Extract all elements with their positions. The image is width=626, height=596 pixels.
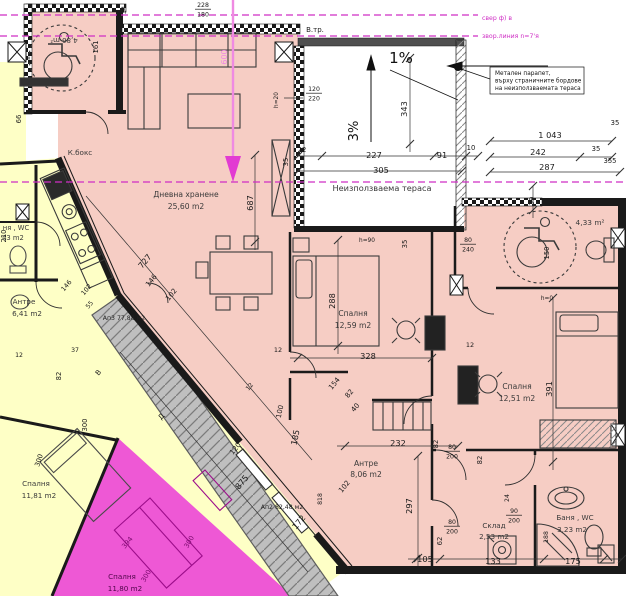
room-area-bedroom1: 12,59 m2 — [335, 321, 372, 330]
dim-label: 10 — [467, 144, 476, 152]
room-label-living: Дневна хранене — [153, 190, 219, 199]
door-size: 240 — [462, 247, 474, 254]
dim-fraction: 180 — [197, 12, 209, 19]
dim-label: 232 — [390, 438, 406, 448]
dim-label: 82 — [55, 372, 63, 381]
note-line-2: върху страничните бордове — [495, 79, 582, 85]
room-area-bath1: 4,86 m² — [50, 36, 78, 44]
note-line-3: на неизползваемата тераса — [495, 86, 581, 92]
door-size: 90 — [510, 508, 518, 515]
floor-plan-drawing: 22818012022080240802008020090200 К.боксД… — [0, 0, 626, 596]
dim-label: 328 — [360, 351, 376, 361]
apartment-label-ap3: Ап3 77,88 м2 — [103, 315, 146, 322]
railing-leader-dot — [455, 64, 462, 71]
room-area-hall-left: 6,41 m2 — [12, 309, 42, 318]
dim-label: 150 — [543, 247, 551, 260]
slope-3pct: 3% — [347, 121, 362, 142]
dim-label: 22 — [298, 146, 307, 154]
dim-label: 210 — [0, 230, 8, 243]
dim-label: 161 — [92, 41, 100, 54]
dim-label: 133 — [485, 556, 501, 566]
dim-label: h=90 — [359, 238, 375, 244]
dim-label: 82 — [476, 456, 484, 465]
door-size: 80 — [448, 519, 456, 526]
dim-label: 343 — [399, 101, 409, 117]
dim-label: 35 — [401, 240, 409, 249]
dim-label: 188 — [543, 531, 550, 543]
dim-label: 242 — [530, 147, 546, 157]
apartment-label-ap2: Ап2 82,48 м2 — [261, 504, 304, 511]
dim-label: 12 — [15, 352, 23, 359]
room-label-storage: Склад — [482, 521, 505, 530]
dim-label: 288 — [327, 293, 337, 309]
dim-label: 227 — [366, 150, 382, 160]
room-label-hall: Антре — [354, 459, 378, 468]
door-size: 200 — [446, 529, 458, 536]
room-area-bath2: 4,33 m² — [576, 218, 605, 227]
dim-label: 105 — [417, 554, 433, 564]
room-label-terrace: Неизползваема тераса — [332, 183, 431, 193]
dim-fraction: 228 — [197, 2, 209, 9]
dim-600: 600 — [220, 49, 229, 64]
dim-label: 24 — [504, 494, 511, 502]
door-size: 80 — [448, 444, 456, 451]
door-size: 200 — [508, 518, 520, 525]
room-area-bath: 3,23 m2 — [557, 525, 587, 534]
dim-label: 175 — [565, 556, 581, 566]
door-size: 220 — [308, 96, 320, 103]
dim-label: 355 — [604, 157, 617, 165]
note-line-1: Метален парапет, — [495, 71, 551, 77]
survey-label-2: звор.линия n=7'я — [482, 33, 539, 40]
dim-label: 82 — [432, 440, 440, 449]
dim-label: 35 — [282, 158, 290, 167]
dim-label: 12 — [466, 341, 474, 349]
dim-label: 34 — [120, 6, 128, 14]
dim-label: 287 — [539, 162, 555, 172]
dim-label: 297 — [404, 498, 414, 514]
dim-label: 391 — [544, 381, 554, 397]
desk-1 — [425, 316, 445, 350]
room-label-bedroom2: Спалня — [502, 382, 531, 391]
room-area-living: 25,60 m2 — [168, 202, 205, 211]
door-size: 200 — [446, 454, 458, 461]
door-size: 120 — [308, 86, 320, 93]
room-area-storage: 2,53 m2 — [479, 532, 509, 541]
room-area-hall: 8,06 m2 — [350, 470, 382, 479]
dim-label: 305 — [373, 165, 389, 175]
dim-label: 62 — [436, 537, 444, 546]
floor-plan-page: 22818012022080240802008020090200 К.боксД… — [0, 0, 626, 596]
slope-1pct: 1% — [389, 49, 413, 67]
dim-label: 39 — [528, 197, 536, 206]
wardrobe-2 — [540, 420, 616, 448]
label-vtr: В.тр. — [306, 26, 324, 34]
room-area-bedroom2: 12,51 m2 — [499, 394, 536, 403]
dim-label: 35 — [592, 145, 601, 153]
dim-label: h=0 — [541, 296, 554, 302]
dim-label: 1 043 — [538, 130, 561, 140]
room-area-bedroom-magenta: 11,80 m2 — [108, 584, 142, 593]
dim-label: 37 — [71, 347, 79, 354]
dim-label: 91 — [437, 150, 447, 160]
room-label-bath: Баня , WC — [556, 513, 593, 522]
dim-label: 66 — [15, 115, 23, 124]
room-label-bedroom-left: Спалня — [22, 479, 50, 488]
room-label-hall-left: Антре — [13, 297, 36, 306]
dim-label: 687 — [245, 195, 255, 211]
terrace-area — [304, 46, 456, 226]
room-label-bedroom1: Спалня — [338, 309, 367, 318]
room-label-kbox: К.бокс — [68, 148, 93, 157]
dim-label: h=20 — [274, 92, 280, 108]
dim-label: 300 — [81, 419, 89, 432]
dim-label: 12 — [274, 346, 282, 354]
door-size: 80 — [464, 237, 472, 244]
room-label-bedroom-magenta: Спалня — [108, 572, 136, 581]
desk-2 — [458, 366, 478, 404]
dim-label: 35 — [611, 119, 620, 127]
survey-label-1: свер ф) в — [482, 15, 512, 22]
dim-label: 818 — [317, 493, 324, 505]
room-area-bedroom-left: 11,81 m2 — [22, 491, 56, 500]
